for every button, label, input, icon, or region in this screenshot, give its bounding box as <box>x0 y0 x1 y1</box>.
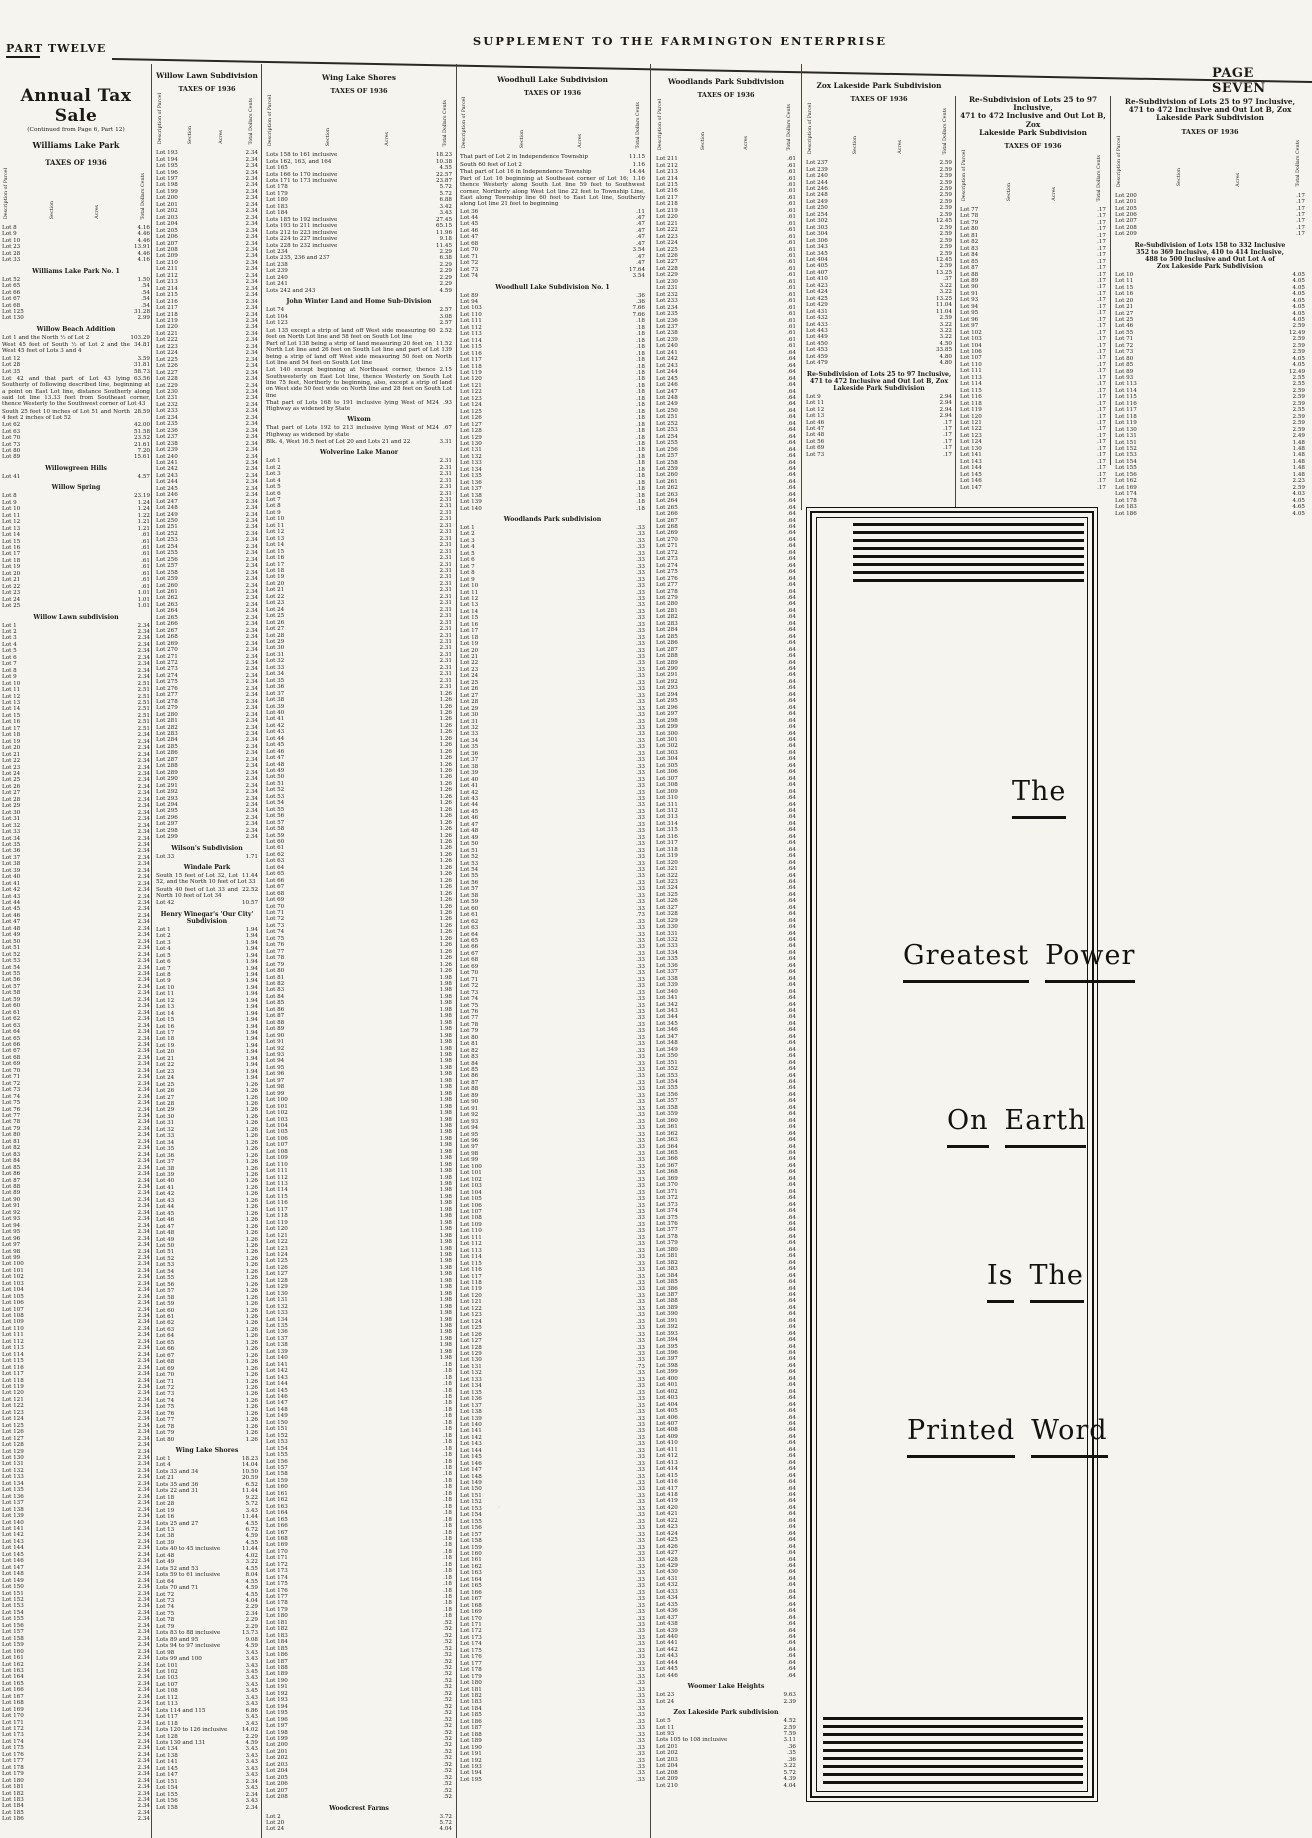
column-taxes-of: TAXES OF 1936 <box>960 142 1106 150</box>
ad-bottom-rules <box>823 1712 1083 1784</box>
lot-row: Lot 2992.34 <box>156 834 258 840</box>
section-heading-line: Lakeside Park Subdivision <box>806 385 952 392</box>
lot-row: Lot 2104.04 <box>656 1783 796 1789</box>
tax-amount: 1.01 <box>138 603 150 609</box>
ad-bottom-rule <box>823 1773 1083 1776</box>
ad-top-rules <box>853 523 1084 587</box>
ad-line: OnEarth <box>947 1105 1086 1148</box>
ad-top-rule <box>853 547 1084 550</box>
lot-label: Lot 140 <box>460 506 482 512</box>
masthead-taxes-of: TAXES OF 1936 <box>0 158 152 167</box>
lot-label: Lot 33 <box>2 257 20 263</box>
ad-word: Greatest <box>903 940 1029 983</box>
ad-bottom-rule <box>823 1757 1083 1760</box>
section-heading: Wolverine Lake Manor <box>266 449 452 456</box>
column-field-headers: Description of ParcelSectionAcresTotal D… <box>808 108 948 154</box>
lot-row: Lot 331.71 <box>156 854 258 860</box>
ad-word: The <box>1012 776 1066 819</box>
column-divider-rule <box>955 96 956 507</box>
lot-row: Lot 743.54 <box>460 273 645 279</box>
tax-amount: .52 <box>443 1794 452 1800</box>
lot-row: Lot 801.26 <box>156 1437 258 1443</box>
parcel-description: 2.15Lot 140 except beginning at Northeas… <box>266 367 452 398</box>
column-title-line: Lakeside Park Subdivision <box>1115 114 1305 122</box>
field-header: Section <box>326 128 331 146</box>
column-taxes-of: TAXES OF 1936 <box>460 89 645 97</box>
lot-row: Lot 73.17 <box>806 452 952 458</box>
tax-amount: 11.15 <box>629 154 645 160</box>
lot-row: Lot 1232.57 <box>266 320 452 326</box>
tax-amount: 2.39 <box>784 1699 796 1705</box>
lot-label: Lots 242 and 243 <box>266 288 315 294</box>
parcel-description: 2.52Lot 135 except a strip of land off W… <box>266 328 452 341</box>
tax-amount: 4.04 <box>440 1826 452 1832</box>
tax-amount: 4.57 <box>138 474 150 480</box>
field-header: Section <box>188 126 193 144</box>
column-divider-rule <box>261 64 262 1838</box>
tax-amount: 4.80 <box>940 360 952 366</box>
lot-label: Lot 33 <box>156 854 174 860</box>
lot-label: Lot 208 <box>266 1794 288 1800</box>
lot-label: Lot 73 <box>806 452 824 458</box>
part-label: PART TWELVE <box>6 42 106 58</box>
field-header: Description of Parcel <box>658 99 663 150</box>
column-resubdivision-zox-2: Re-Subdivision of Lots 25 to 97 Inclusiv… <box>1115 98 1305 517</box>
lot-label: Lot 74 <box>460 273 478 279</box>
ad-word: Earth <box>1005 1105 1087 1148</box>
tax-amount: 1.16 <box>633 162 645 168</box>
section-heading-line: Re-Subdivision of Lots 25 to 97 Inclusiv… <box>806 371 952 378</box>
tax-amount: 2.52 <box>440 328 452 334</box>
column-taxes-of: TAXES OF 1936 <box>156 85 258 93</box>
section-heading: Windale Park <box>156 864 258 871</box>
field-header: Acres <box>898 140 903 154</box>
column-title-line: Re-Subdivision of Lots 25 to 97 Inclusiv… <box>960 96 1106 112</box>
field-header: Section <box>1177 168 1182 186</box>
tax-amount: 2.34 <box>138 1816 150 1822</box>
column-williams-lake-park: Description of ParcelSectionAcresTotal D… <box>2 168 150 1823</box>
section-heading: Woodcrest Farms <box>266 1805 452 1812</box>
lot-label: Lot 24 <box>266 1826 284 1832</box>
field-header: Total Dollars Cents <box>787 104 792 151</box>
column-field-headers: Description of ParcelSectionAcresTotal D… <box>268 100 448 146</box>
tax-amount: .67 <box>443 425 452 431</box>
column-title: Wing Lake Shores <box>266 74 452 82</box>
lot-label: Lot 147 <box>960 485 982 491</box>
field-header: Section <box>520 130 525 148</box>
section-heading: Willowgreen Hills <box>2 465 150 472</box>
section-heading: Woodlands Park subdivision <box>460 516 645 523</box>
tax-amount: 10.57 <box>242 900 258 906</box>
ad-top-rule <box>853 579 1084 582</box>
ad-bottom-rule <box>823 1717 1083 1720</box>
newspaper-page: PART TWELVE SUPPLEMENT TO THE FARMINGTON… <box>0 0 1312 1838</box>
lot-row: Lots 242 and 2434.59 <box>266 288 452 294</box>
column-title: Zox Lakeside Park Subdivision <box>806 82 952 90</box>
tax-sale-masthead: Annual Tax Sale (Continued from Page 6, … <box>0 86 152 167</box>
lot-row: Lot 414.57 <box>2 474 150 480</box>
tax-amount: .17 <box>1097 485 1106 491</box>
lot-label: Lot 25 <box>2 603 20 609</box>
section-heading: Wilson's Subdivision <box>156 845 258 852</box>
tax-amount: 4.04 <box>784 1783 796 1789</box>
column-field-headers: Description of ParcelSectionAcresTotal D… <box>658 104 792 150</box>
column-taxes-of: TAXES OF 1936 <box>266 87 452 95</box>
section-heading-line: 471 to 472 Inclusive and Out Lot B, Zox <box>806 378 952 385</box>
lot-label: Lot 186 <box>1115 511 1137 517</box>
column-woodlands-park-subdivision: Woodlands Park SubdivisionTAXES OF 1936D… <box>656 78 796 1789</box>
lot-label: Lot 299 <box>156 834 178 840</box>
field-header: Section <box>853 136 858 154</box>
parcel-description: 22.52South 40 feet of Lot 33 and North 1… <box>156 887 258 900</box>
tax-amount: .33 <box>636 1777 645 1783</box>
section-heading: Re-Subdivision of Lots 158 to 332 Inclus… <box>1115 242 1305 270</box>
parcel-description: 28.59South 25 feet 10 inches of Lot 51 a… <box>2 409 150 422</box>
section-heading-line: 488 to 500 Inclusive and Out Lot A of <box>1115 256 1305 263</box>
tax-amount: 2.15 <box>440 367 452 373</box>
ad-bottom-rule <box>823 1733 1083 1736</box>
column-divider-rule <box>650 64 651 1838</box>
column-taxes-of: TAXES OF 1936 <box>1115 128 1305 136</box>
column-field-headers: Description of ParcelSectionAcresTotal D… <box>4 173 146 219</box>
column-title-line: 471 to 472 Inclusive and Out Lot B, Zox <box>960 112 1106 128</box>
ad-line: GreatestPower <box>903 940 1135 983</box>
lot-row: Lot 244.04 <box>266 1826 452 1832</box>
section-heading: Willow Spring <box>2 484 150 491</box>
lot-row: Lot 242.39 <box>656 1699 796 1705</box>
field-header: Acres <box>1052 187 1057 201</box>
field-header: Total Dollars Cents <box>141 173 146 220</box>
masthead-subtitle: (Continued from Page 6, Part 12) <box>0 127 152 133</box>
tax-amount: 1.16 <box>633 176 645 182</box>
tax-amount: 4.16 <box>138 257 150 263</box>
masthead-place: Williams Lake Park <box>0 140 152 150</box>
supplement-title: SUPPLEMENT TO THE FARMINGTON ENTERPRISE <box>400 34 960 48</box>
tax-amount: 103.29 <box>130 335 150 341</box>
parcel-description: 11.15That part of Lot 2 in Independence … <box>460 154 645 160</box>
ad-line: The <box>1012 776 1066 819</box>
tax-amount: 34.81 <box>134 342 150 348</box>
tax-amount: 2.99 <box>138 315 150 321</box>
lot-row: Lot 208.52 <box>266 1794 452 1800</box>
parcel-description: 103.29Lot 1 and the North ½ of Lot 2 <box>2 335 150 341</box>
ad-top-rule <box>853 523 1084 526</box>
lot-row: Lot 1302.99 <box>2 315 150 321</box>
lot-row: Lot 8915.61 <box>2 454 150 460</box>
column-field-headers: Description of ParcelSectionAcresTotal D… <box>962 155 1102 201</box>
ad-line: PrintedWord <box>907 1415 1108 1458</box>
field-header: Acres <box>95 205 100 219</box>
field-header: Description of Parcel <box>158 93 163 144</box>
tax-amount: 28.59 <box>134 409 150 415</box>
tax-amount: 2.34 <box>246 834 258 840</box>
lot-label: Lot 42 <box>156 900 174 906</box>
field-header: Section <box>50 201 55 219</box>
tax-amount: 1.26 <box>246 1437 258 1443</box>
ad-word: The <box>1030 1260 1084 1303</box>
column-field-headers: Description of ParcelSectionAcresTotal D… <box>462 102 641 148</box>
column-title: Re-Subdivision of Lots 25 to 97 Inclusiv… <box>1115 98 1305 123</box>
tax-amount: 2.34 <box>246 1805 258 1811</box>
section-heading: Willow Lawn subdivision <box>2 614 150 621</box>
ad-word: Is <box>987 1260 1014 1303</box>
ad-word: Power <box>1045 940 1135 983</box>
column-title: Woodlands Park Subdivision <box>656 78 796 86</box>
tax-amount: .17 <box>1296 231 1305 237</box>
column-title-line: Lakeside Park Subdivision <box>960 129 1106 137</box>
tax-amount: 15.61 <box>134 454 150 460</box>
field-header: Total Dollars Cents <box>943 108 948 155</box>
tax-amount: .17 <box>943 452 952 458</box>
parcel-description: 1.16Part of Lot 16 beginning at Southeas… <box>460 176 645 207</box>
lot-label: Lot 446 <box>656 1673 678 1679</box>
lot-row: Lot 4794.80 <box>806 360 952 366</box>
ad-top-rule <box>853 571 1084 574</box>
section-heading-line: Zox Lakeside Park Subdivision <box>1115 263 1305 270</box>
field-header: Description of Parcel <box>808 103 813 154</box>
tax-amount: .18 <box>636 506 645 512</box>
tax-amount: 11.44 <box>242 873 258 879</box>
field-header: Total Dollars Cents <box>1296 140 1301 187</box>
column-divider-rule <box>151 64 152 1838</box>
parcel-description: 1.16South 60 feet of Lot 2 <box>460 162 645 168</box>
tax-amount: .64 <box>787 1673 796 1679</box>
ad-bottom-rule <box>823 1749 1083 1752</box>
field-header: Total Dollars Cents <box>1097 155 1102 202</box>
column-wing-lake-shores: Wing Lake ShoresTAXES OF 1936Description… <box>266 74 452 1833</box>
lot-row: Lot 4210.57 <box>156 900 258 906</box>
lot-row: Lot 334.16 <box>2 257 150 263</box>
section-heading: Woomer Lake Heights <box>656 1683 796 1690</box>
section-heading: Woodhull Lake Subdivision No. 1 <box>460 284 645 291</box>
lot-row: Lot 1862.34 <box>2 1816 150 1822</box>
tax-amount: 63.56 <box>134 376 150 382</box>
lot-label: Lot 186 <box>2 1816 24 1822</box>
ad-bottom-rule <box>823 1725 1083 1728</box>
parcel-description: 11.44South 15 feet of Lot 32, Lot 52, an… <box>156 873 258 886</box>
section-heading: Henry Winegar's 'Our City' Subdivision <box>156 911 258 925</box>
section-heading-line: 352 to 369 Inclusive, 410 to 414 Inclusi… <box>1115 249 1305 256</box>
column-divider-rule <box>801 64 802 510</box>
column-title: Woodhull Lake Subdivision <box>460 76 645 84</box>
parcel-description: .67That part of Lots 192 to 213 inclusiv… <box>266 425 452 438</box>
field-header: Acres <box>744 136 749 150</box>
field-header: Description of Parcel <box>962 150 967 201</box>
tax-amount: 4.59 <box>440 288 452 294</box>
ad-border-innermost <box>816 517 1088 1792</box>
column-field-headers: Description of ParcelSectionAcresTotal D… <box>1117 141 1301 187</box>
column-woodhull-lake-subdivision: Woodhull Lake SubdivisionTAXES OF 1936De… <box>460 76 645 1783</box>
ad-line: IsThe <box>987 1260 1084 1303</box>
ad-word: Printed <box>907 1415 1015 1458</box>
field-header: Acres <box>1236 173 1241 187</box>
tax-amount: 3.54 <box>633 273 645 279</box>
column-taxes-of: TAXES OF 1936 <box>656 91 796 99</box>
field-header: Acres <box>578 134 583 148</box>
lot-row: Lot 1582.34 <box>156 1805 258 1811</box>
parcel-description: .93That part of Lots 168 to 191 inclusiv… <box>266 400 452 413</box>
lot-label: Lot 158 <box>156 1805 178 1811</box>
ad-top-rule <box>853 563 1084 566</box>
printed-word-ad-box: TheGreatestPowerOnEarthIsThePrintedWord <box>806 507 1098 1802</box>
ad-word: On <box>947 1105 989 1148</box>
field-header: Section <box>1007 183 1012 201</box>
tax-amount: 2.57 <box>440 320 452 326</box>
lot-label: Lot 209 <box>1115 231 1137 237</box>
lot-row: Lot 140.18 <box>460 506 645 512</box>
lot-row: Lot 147.17 <box>960 485 1106 491</box>
lot-label: Lot 479 <box>806 360 828 366</box>
column-willow-lawn-subdivision: Willow Lawn SubdivisionTAXES OF 1936Desc… <box>156 72 258 1811</box>
ad-top-rule <box>853 555 1084 558</box>
tax-amount: 11.52 <box>436 341 452 347</box>
tax-amount: 4.05 <box>1293 511 1305 517</box>
tax-amount: 1.71 <box>246 854 258 860</box>
tax-amount: 3.31 <box>440 439 452 445</box>
masthead-title: Annual Tax Sale <box>0 86 152 126</box>
field-header: Description of Parcel <box>1117 136 1122 187</box>
parcel-description: 11.52Part of Lot 138 being a strip of la… <box>266 341 452 366</box>
section-heading: Wixom <box>266 416 452 423</box>
section-heading: Williams Lake Park No. 1 <box>2 268 150 275</box>
section-heading-line: Re-Subdivision of Lots 158 to 332 Inclus… <box>1115 242 1305 249</box>
column-title: Re-Subdivision of Lots 25 to 97 Inclusiv… <box>960 96 1106 137</box>
section-heading: Zox Lakeside Park subdivision <box>656 1709 796 1716</box>
column-resubdivision-zox-1: Re-Subdivision of Lots 25 to 97 Inclusiv… <box>960 96 1106 491</box>
lot-row: Lot 195.33 <box>460 1777 645 1783</box>
section-heading: Willow Beach Addition <box>2 326 150 333</box>
field-header: Total Dollars Cents <box>636 102 641 149</box>
lot-label: Lot 35 <box>2 369 20 375</box>
column-title: Willow Lawn Subdivision <box>156 72 258 80</box>
lot-label: Lot 195 <box>460 1777 482 1783</box>
lot-row: Lot 251.01 <box>2 603 150 609</box>
section-heading: Wing Lake Shores <box>156 1447 258 1454</box>
ad-top-rule <box>853 531 1084 534</box>
lot-row: Lot 209.17 <box>1115 231 1305 237</box>
lot-row: Lot 446.64 <box>656 1673 796 1679</box>
tax-amount: .93 <box>443 400 452 406</box>
column-divider-rule <box>456 64 457 1838</box>
parcel-description: 14.44That part of Lot 16 in Independence… <box>460 169 645 175</box>
ad-top-rule <box>853 539 1084 542</box>
parcel-description: 3.31Blk. 4, West 16.5 feet of Lot 20 and… <box>266 439 452 445</box>
lot-label: Lot 41 <box>2 474 20 480</box>
lot-row: Lot 3558.73 <box>2 369 150 375</box>
lot-label: Lot 210 <box>656 1783 678 1789</box>
field-header: Description of Parcel <box>462 97 467 148</box>
column-field-headers: Description of ParcelSectionAcresTotal D… <box>158 98 254 144</box>
section-heading: John Winter Land and Home Sub-Division <box>266 298 452 305</box>
field-header: Acres <box>219 130 224 144</box>
tax-amount: 58.73 <box>134 369 150 375</box>
section-heading: Re-Subdivision of Lots 25 to 97 Inclusiv… <box>806 371 952 392</box>
column-zox-lakeside-park-subdivision: Zox Lakeside Park SubdivisionTAXES OF 19… <box>806 82 952 458</box>
field-header: Description of Parcel <box>268 95 273 146</box>
ad-word: Word <box>1031 1415 1107 1458</box>
ad-bottom-rule <box>823 1781 1083 1784</box>
tax-amount: 14.44 <box>629 169 645 175</box>
lot-label: Lot 24 <box>656 1699 674 1705</box>
ad-bottom-rule <box>823 1741 1083 1744</box>
column-taxes-of: TAXES OF 1936 <box>806 95 952 103</box>
ad-bottom-rule <box>823 1765 1083 1768</box>
lot-label: Lot 89 <box>2 454 20 460</box>
field-header: Description of Parcel <box>4 168 9 219</box>
column-divider-rule <box>1110 96 1111 465</box>
lot-label: Lot 130 <box>2 315 24 321</box>
lot-label: Lot 80 <box>156 1437 174 1443</box>
tax-amount: 22.52 <box>242 887 258 893</box>
parcel-description: 34.81West 45 feet of South ½ of Lot 2 an… <box>2 342 150 355</box>
field-header: Total Dollars Cents <box>443 100 448 147</box>
lot-label: Lot 123 <box>266 320 288 326</box>
field-header: Acres <box>385 132 390 146</box>
parcel-description: 63.56Lot 42 and that part of Lot 43 lyin… <box>2 376 150 407</box>
field-header: Section <box>701 132 706 150</box>
lot-row: Lot 1864.05 <box>1115 511 1305 517</box>
field-header: Total Dollars Cents <box>249 98 254 145</box>
